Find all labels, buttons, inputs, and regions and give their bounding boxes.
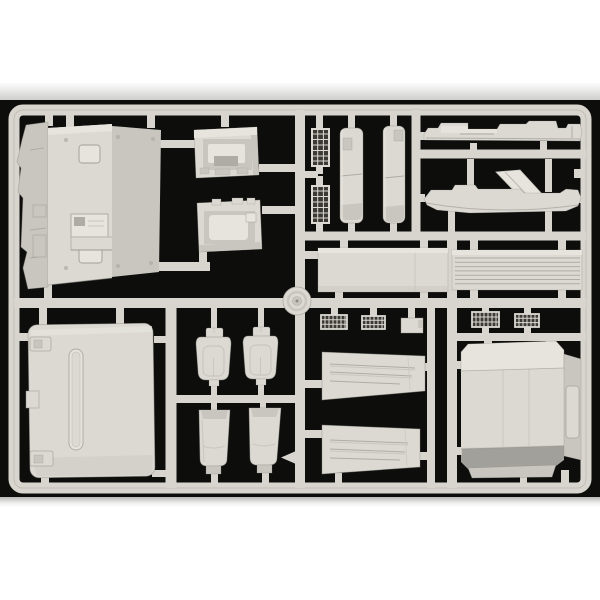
part-side-fairing-1	[340, 128, 363, 223]
part-vent-grille-3	[472, 312, 499, 327]
part-vent-grille-4	[515, 314, 539, 327]
part-louvered-panel	[452, 250, 582, 290]
part-steering-wheel	[283, 287, 311, 315]
backdrop-top-band	[0, 82, 600, 100]
part-side-fairing-2	[383, 126, 405, 223]
part-small-plate	[401, 318, 423, 333]
sprue-photo-canvas	[0, 0, 600, 600]
product-photo	[0, 0, 600, 600]
part-ribbed-mudflap-lower	[322, 425, 420, 474]
part-ladder-grille-2	[312, 186, 329, 223]
part-ladder-grille-1	[312, 129, 329, 166]
part-vent-grille-2	[362, 316, 385, 329]
part-floor-panel-large	[461, 341, 581, 478]
part-cab-rear-panel	[26, 323, 155, 478]
part-seat-backrest-right	[243, 327, 278, 385]
part-cab-floor-assembly	[17, 122, 161, 289]
part-dashboard-lower	[197, 198, 262, 252]
part-seat-base-left	[199, 410, 230, 474]
backdrop-bottom-band	[0, 497, 600, 507]
part-seat-backrest-left	[196, 328, 231, 386]
part-smooth-panel	[318, 248, 448, 292]
part-dashboard-upper	[194, 127, 259, 178]
part-vent-grille-1	[321, 315, 347, 329]
